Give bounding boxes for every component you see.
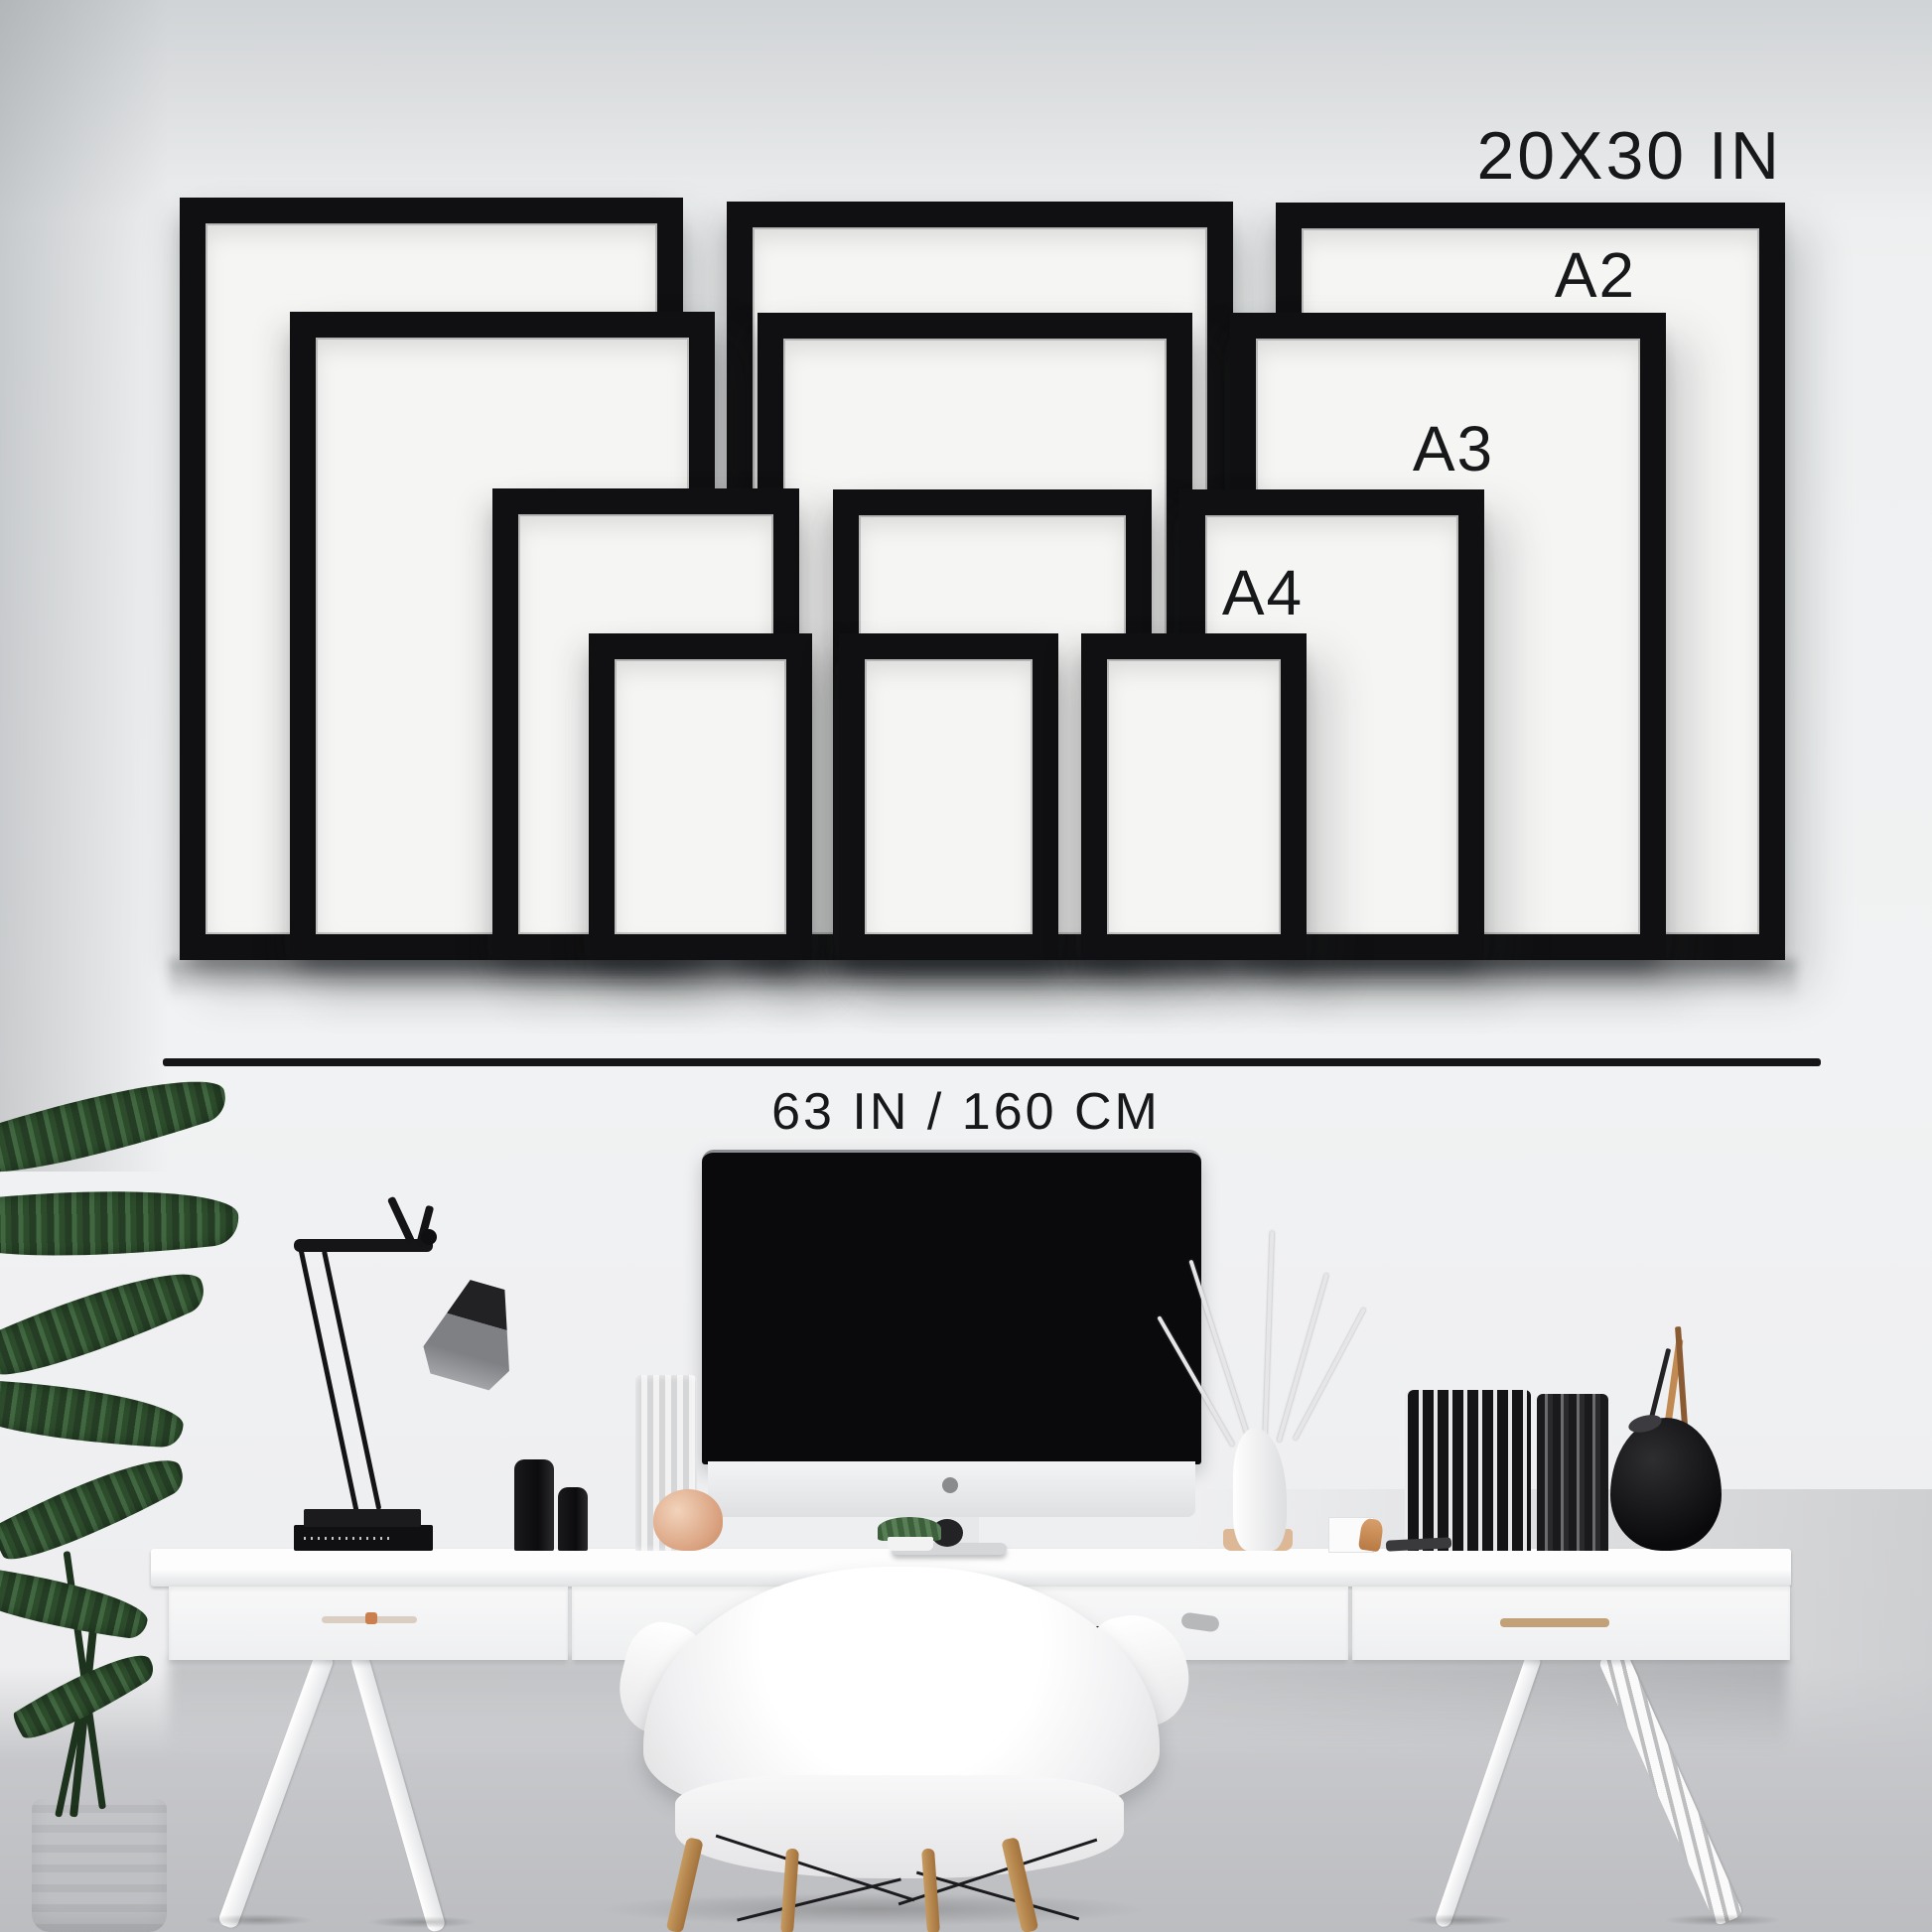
lamp-base-books bbox=[294, 1509, 433, 1551]
monitor-logo-dot bbox=[942, 1477, 958, 1493]
plant-leaf bbox=[0, 1173, 241, 1273]
white-branch-vase bbox=[1233, 1428, 1287, 1551]
size-guide-scene: 20X30 IN A2 A3 A4 63 IN / 160 CM bbox=[0, 0, 1932, 1932]
monitor-screen bbox=[702, 1150, 1201, 1464]
standing-books-striped bbox=[1537, 1394, 1608, 1551]
leg-shadow bbox=[367, 1916, 477, 1928]
width-measure-line bbox=[163, 1058, 1821, 1066]
plant-leaf bbox=[0, 1379, 185, 1448]
dried-branch bbox=[1263, 1231, 1274, 1440]
width-measure-label: 63 IN / 160 CM bbox=[767, 1082, 1165, 1142]
dried-branch bbox=[1293, 1308, 1366, 1441]
copper-figurine bbox=[1358, 1518, 1384, 1553]
drawer-handle-right bbox=[1500, 1618, 1609, 1627]
frame-a4-right bbox=[1081, 633, 1307, 960]
plant-leaf bbox=[0, 1567, 152, 1641]
black-bottle-short bbox=[558, 1487, 588, 1551]
lamp-head bbox=[417, 1273, 531, 1395]
label-a4: A4 bbox=[1164, 556, 1362, 629]
black-round-vase bbox=[1610, 1418, 1722, 1551]
frames-drop-shadow bbox=[169, 959, 1797, 1001]
lamp-clamp-fin bbox=[387, 1196, 415, 1245]
label-a2: A2 bbox=[1496, 238, 1695, 312]
standing-books-black bbox=[1408, 1390, 1531, 1551]
frame-a4-left bbox=[589, 633, 812, 960]
leg-shadow bbox=[1405, 1914, 1514, 1926]
drawer-handle-left-accent bbox=[365, 1612, 377, 1624]
leg-shadow bbox=[1663, 1914, 1782, 1926]
label-a3: A3 bbox=[1354, 412, 1553, 485]
book-spine bbox=[294, 1525, 433, 1551]
succulent-pot bbox=[888, 1537, 933, 1551]
plant-leaf bbox=[0, 1247, 211, 1396]
label-20x30: 20X30 IN bbox=[1390, 117, 1782, 195]
chair-seat bbox=[675, 1775, 1124, 1878]
copper-ball-ornament bbox=[653, 1489, 723, 1551]
frame-a4-center bbox=[839, 633, 1058, 960]
dried-branch bbox=[1277, 1273, 1328, 1442]
black-bottle-tall bbox=[514, 1459, 554, 1551]
plant-pot bbox=[32, 1799, 167, 1932]
lamp-joint bbox=[421, 1229, 437, 1245]
wall-corner-shading bbox=[0, 0, 169, 1172]
leg-shadow bbox=[204, 1914, 313, 1926]
book-spine bbox=[304, 1509, 421, 1527]
